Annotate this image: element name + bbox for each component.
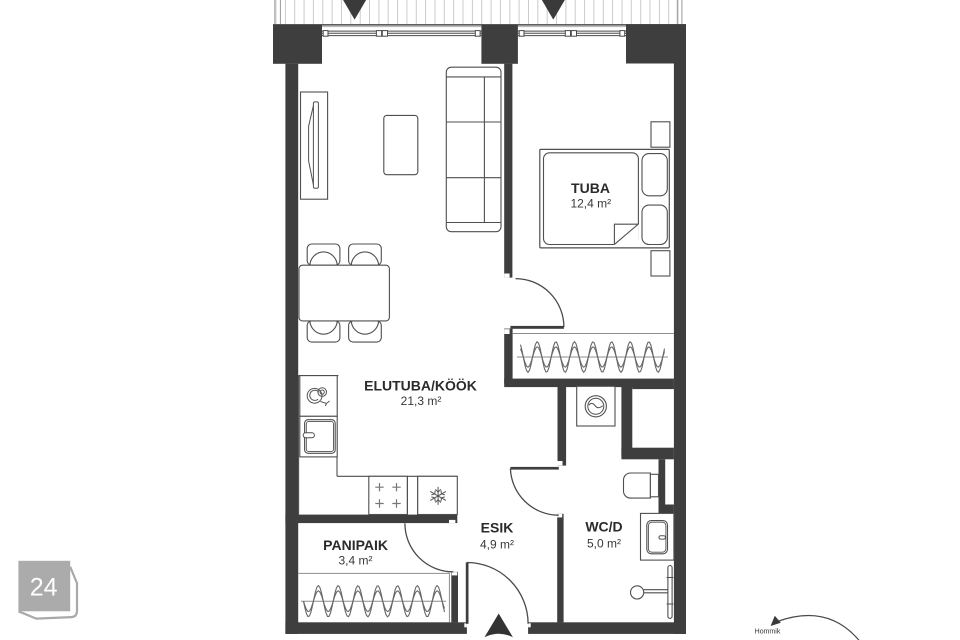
svg-text:PANIPAIK: PANIPAIK (323, 537, 388, 553)
svg-text:TUBA: TUBA (571, 180, 610, 196)
svg-text:ESIK: ESIK (481, 520, 514, 536)
svg-text:21,3 m²: 21,3 m² (401, 394, 442, 408)
svg-text:5,0 m²: 5,0 m² (587, 536, 621, 550)
svg-text:4,9 m²: 4,9 m² (480, 537, 514, 551)
svg-text:Hommik: Hommik (755, 628, 781, 635)
svg-text:WC/D: WC/D (585, 519, 622, 535)
svg-text:12,4 m²: 12,4 m² (570, 196, 611, 210)
svg-text:ELUTUBA/KÖÖK: ELUTUBA/KÖÖK (364, 378, 477, 394)
svg-text:3,4 m²: 3,4 m² (338, 553, 372, 567)
svg-text:24: 24 (30, 574, 58, 602)
